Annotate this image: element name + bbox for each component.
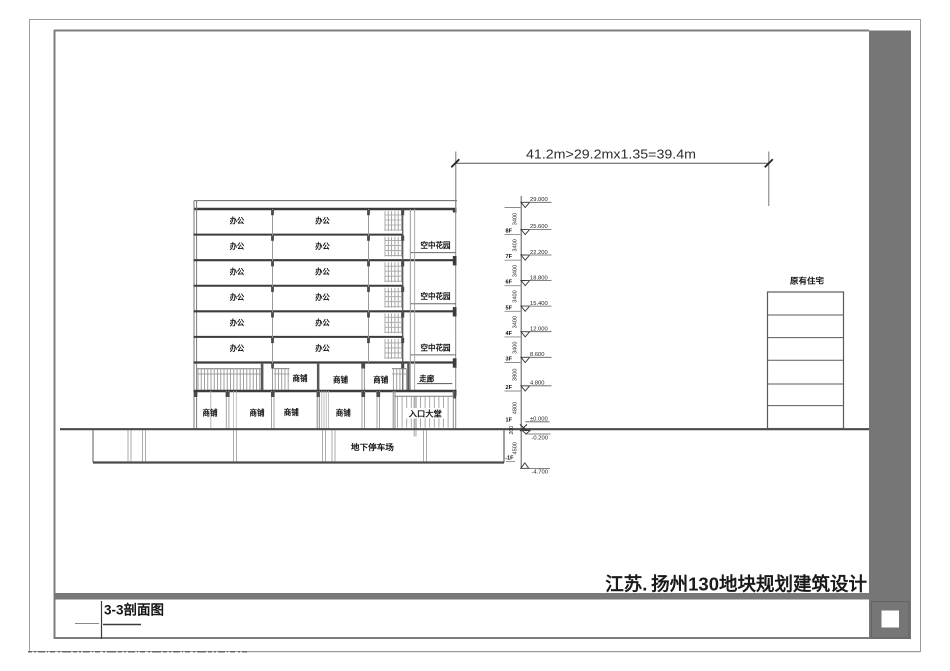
svg-text:办公: 办公 bbox=[315, 241, 330, 251]
svg-text:办公: 办公 bbox=[230, 215, 245, 225]
svg-text:-1F: -1F bbox=[505, 455, 514, 461]
svg-text:走廊: 走廊 bbox=[418, 373, 434, 383]
svg-text:8F: 8F bbox=[505, 229, 512, 235]
svg-text:4F: 4F bbox=[505, 331, 512, 337]
svg-text:15.400: 15.400 bbox=[530, 301, 548, 307]
svg-text:8.600: 8.600 bbox=[530, 352, 545, 358]
svg-text:6F: 6F bbox=[505, 280, 512, 286]
svg-text:3400: 3400 bbox=[513, 341, 519, 353]
svg-text:3F: 3F bbox=[505, 357, 512, 363]
svg-text:2F: 2F bbox=[505, 385, 512, 391]
svg-text:江苏. 扬州130地块规划建筑设计: 江苏. 扬州130地块规划建筑设计 bbox=[605, 574, 867, 595]
svg-text:-4.700: -4.700 bbox=[532, 470, 548, 476]
svg-text:商铺: 商铺 bbox=[293, 373, 308, 383]
svg-text:18.800: 18.800 bbox=[530, 275, 548, 281]
svg-text:商铺: 商铺 bbox=[284, 407, 299, 417]
svg-text:29.000: 29.000 bbox=[530, 197, 548, 203]
svg-text:-0.200: -0.200 bbox=[532, 435, 548, 441]
svg-text:3400: 3400 bbox=[513, 213, 519, 225]
svg-text:办公: 办公 bbox=[230, 318, 245, 328]
svg-text:办公: 办公 bbox=[230, 343, 245, 353]
svg-text:办公: 办公 bbox=[230, 267, 245, 277]
svg-text:空中花园: 空中花园 bbox=[421, 291, 451, 301]
svg-text:7F: 7F bbox=[505, 254, 512, 260]
svg-text:12.000: 12.000 bbox=[530, 327, 548, 333]
svg-text:5F: 5F bbox=[505, 305, 512, 311]
svg-text:±0.000: ±0.000 bbox=[530, 417, 548, 423]
svg-text:办公: 办公 bbox=[315, 292, 330, 302]
svg-text:商铺: 商铺 bbox=[333, 374, 348, 384]
svg-text:4500: 4500 bbox=[513, 442, 519, 454]
svg-text:3800: 3800 bbox=[513, 369, 519, 381]
svg-text:办公: 办公 bbox=[230, 241, 245, 251]
svg-text:3-3剖面图: 3-3剖面图 bbox=[104, 602, 164, 618]
svg-text:商铺: 商铺 bbox=[373, 374, 388, 384]
svg-text:3400: 3400 bbox=[513, 290, 519, 302]
svg-text:3400: 3400 bbox=[513, 265, 519, 277]
svg-text:办公: 办公 bbox=[315, 215, 330, 225]
svg-text:地下停车场: 地下停车场 bbox=[351, 442, 394, 452]
svg-text:办公: 办公 bbox=[315, 267, 330, 277]
svg-text:1F: 1F bbox=[505, 418, 512, 424]
svg-text:3400: 3400 bbox=[513, 316, 519, 328]
svg-text:3400: 3400 bbox=[513, 239, 519, 251]
svg-text:25.600: 25.600 bbox=[530, 224, 548, 230]
svg-text:4800: 4800 bbox=[513, 402, 519, 414]
svg-text:办公: 办公 bbox=[315, 343, 330, 353]
svg-text:41.2m>29.2mx1.35=39.4m: 41.2m>29.2mx1.35=39.4m bbox=[526, 147, 696, 162]
svg-text:4.800: 4.800 bbox=[530, 381, 545, 387]
svg-text:200: 200 bbox=[509, 426, 515, 435]
svg-text:原有住宅: 原有住宅 bbox=[790, 275, 824, 285]
svg-text:空中花园: 空中花园 bbox=[421, 240, 451, 250]
svg-text:入口大堂: 入口大堂 bbox=[408, 409, 442, 419]
svg-text:商铺: 商铺 bbox=[250, 407, 265, 417]
svg-text:办公: 办公 bbox=[315, 318, 330, 328]
svg-text:办公: 办公 bbox=[230, 292, 245, 302]
svg-text:22.200: 22.200 bbox=[530, 250, 548, 256]
svg-text:商铺: 商铺 bbox=[203, 407, 218, 417]
svg-text:空中花园: 空中花园 bbox=[421, 342, 451, 352]
svg-text:商铺: 商铺 bbox=[336, 407, 351, 417]
